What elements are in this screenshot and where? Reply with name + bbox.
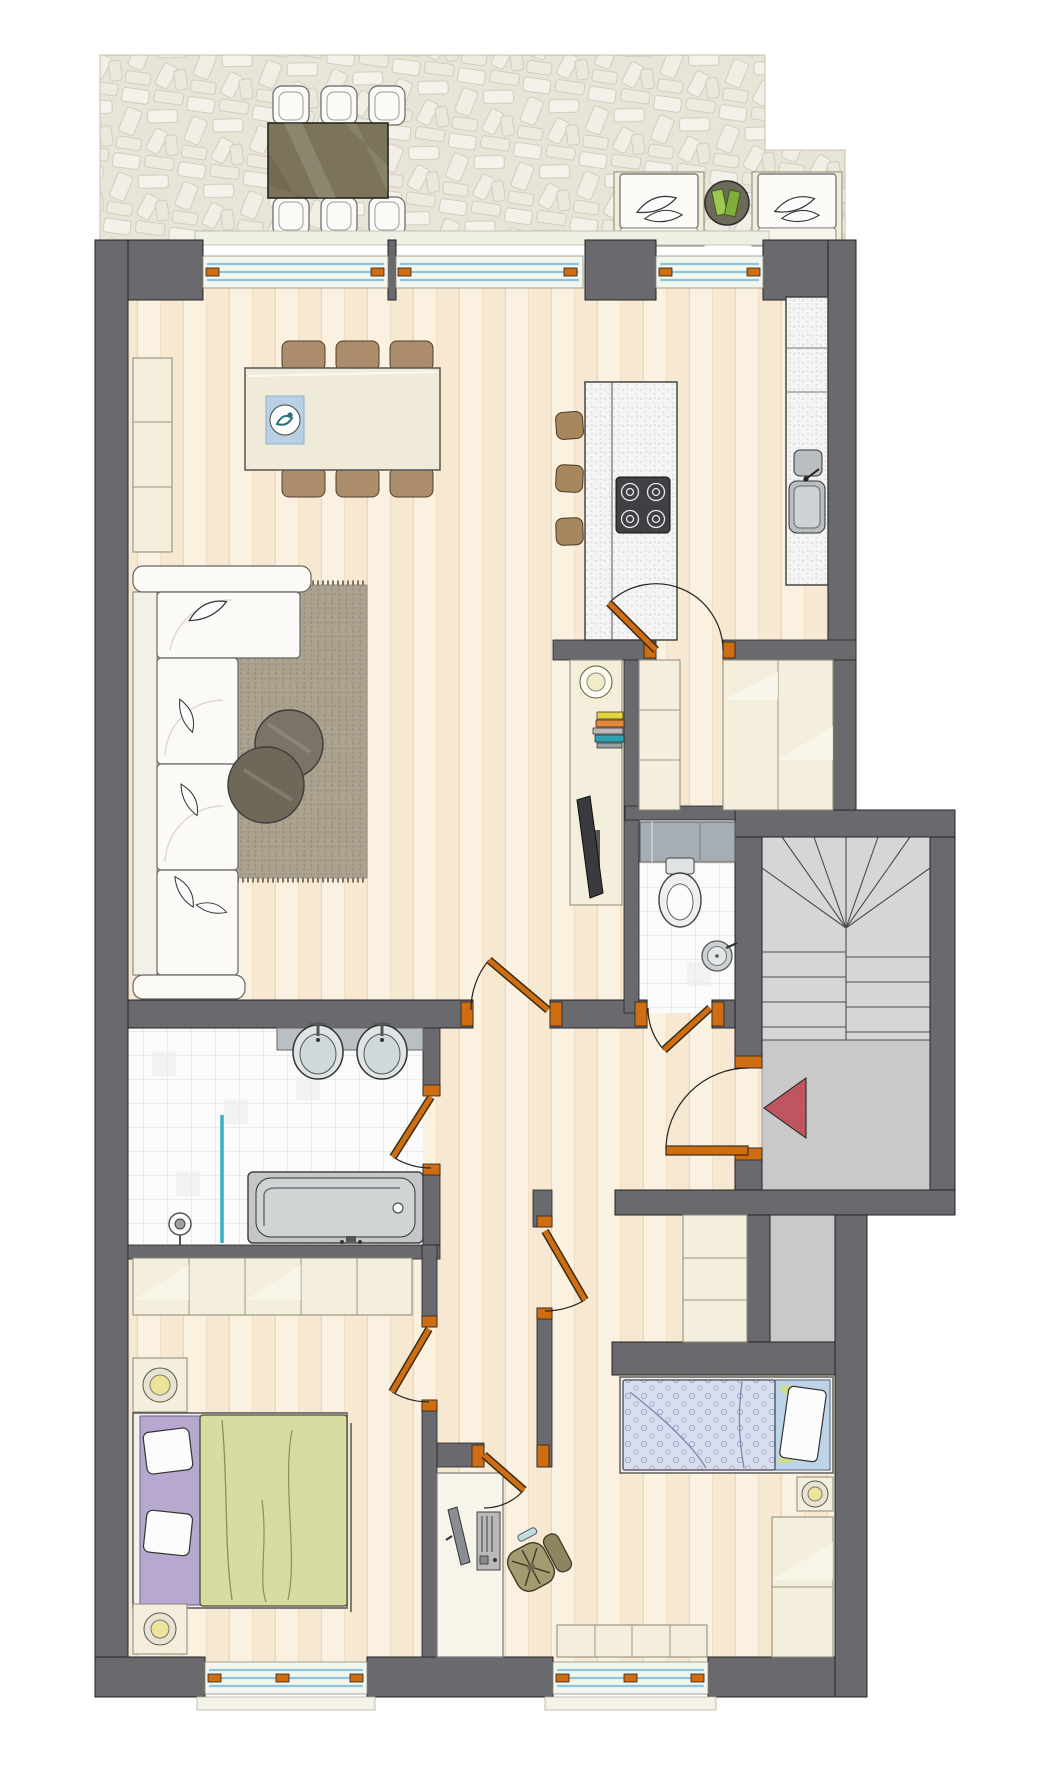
nightstand-2 <box>133 1604 187 1654</box>
dining-table <box>245 368 440 470</box>
terrace-dining-table <box>268 123 388 198</box>
desk <box>437 1473 503 1657</box>
hallway <box>639 660 833 810</box>
lamp <box>808 1487 822 1501</box>
window-pillar <box>585 240 656 300</box>
window-bottom-left <box>197 1662 375 1710</box>
sink-drainer <box>794 450 822 476</box>
shaft-niche <box>770 1215 835 1342</box>
window-bottom-right <box>545 1662 716 1710</box>
nightstand-1 <box>133 1358 187 1412</box>
duvet <box>200 1415 347 1606</box>
hall-closet-left <box>639 660 680 810</box>
single-bed <box>620 1377 833 1473</box>
floor-plan-drawing <box>0 0 1064 1774</box>
double-bed <box>133 1413 351 1612</box>
window-top-2 <box>396 256 583 288</box>
right-exterior-wall-lower <box>835 1215 867 1697</box>
floor-plan-page <box>0 0 1064 1774</box>
decorative-bowl <box>270 405 300 435</box>
window-top-3 <box>656 256 763 288</box>
tv-lowboard <box>570 660 624 905</box>
wardrobe <box>683 1215 747 1342</box>
tall-cabinet <box>133 358 172 552</box>
kitchen-counter <box>786 297 828 585</box>
window-top-1 <box>203 256 388 288</box>
nightstand <box>797 1477 833 1511</box>
lamp <box>150 1375 170 1395</box>
pillow <box>143 1510 193 1557</box>
terrace-side-table <box>705 181 749 225</box>
kitchen-island <box>585 382 677 640</box>
cistern-wall <box>640 822 735 862</box>
lamp <box>151 1620 169 1638</box>
left-exterior-wall <box>95 240 128 1697</box>
window-outer-sill <box>195 231 769 245</box>
bathtub <box>248 1172 423 1244</box>
pillow <box>143 1427 194 1474</box>
dotted-duvet <box>623 1380 775 1470</box>
terrace <box>100 55 845 246</box>
bar-stools <box>555 411 584 545</box>
